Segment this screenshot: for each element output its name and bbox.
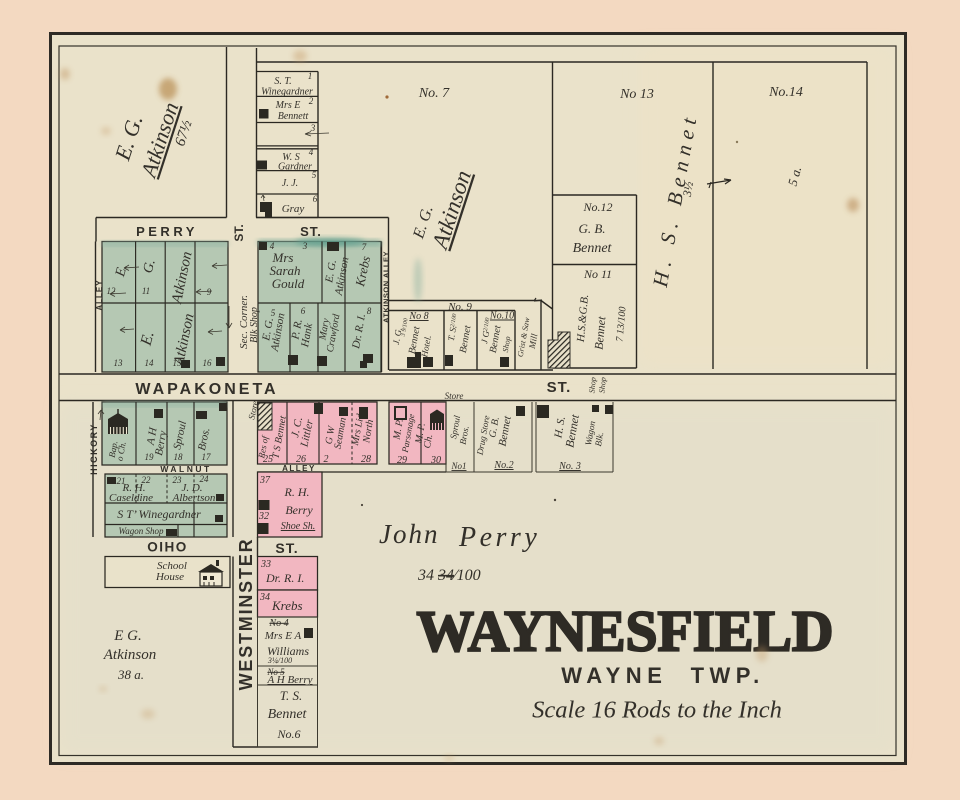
svg-text:WAYNESFIELD: WAYNESFIELD bbox=[417, 599, 834, 664]
svg-text:No.12: No.12 bbox=[582, 200, 612, 214]
svg-text:6: 6 bbox=[301, 306, 306, 316]
svg-text:4: 4 bbox=[270, 241, 275, 251]
svg-text:Bennet: Bennet bbox=[573, 241, 613, 256]
svg-text:Gray: Gray bbox=[282, 203, 305, 215]
svg-text:Caseldine: Caseldine bbox=[109, 492, 153, 504]
svg-text:No.6: No.6 bbox=[276, 727, 300, 741]
svg-text:HICKORY: HICKORY bbox=[89, 423, 99, 475]
svg-text:No 11: No 11 bbox=[583, 267, 612, 281]
svg-text:1: 1 bbox=[308, 71, 313, 81]
svg-text:S. T.: S. T. bbox=[274, 76, 291, 87]
svg-text:Blk Shop: Blk Shop bbox=[249, 307, 260, 343]
svg-text:No1: No1 bbox=[450, 461, 466, 471]
svg-text:Scale 16 Rods to the Inch: Scale 16 Rods to the Inch bbox=[532, 697, 782, 724]
svg-text:11: 11 bbox=[142, 286, 150, 296]
svg-text:5: 5 bbox=[312, 170, 317, 180]
svg-text:Shop: Shop bbox=[587, 377, 597, 394]
svg-text:Bennet: Bennet bbox=[268, 707, 308, 722]
svg-text:J. J.: J. J. bbox=[282, 178, 298, 189]
svg-text:34: 34 bbox=[259, 592, 270, 603]
svg-text:Mrs E: Mrs E bbox=[275, 100, 301, 111]
svg-text:E G.: E G. bbox=[113, 628, 142, 644]
svg-text:16: 16 bbox=[203, 358, 213, 368]
svg-text:T. S.: T. S. bbox=[280, 688, 303, 703]
svg-text:38 a.: 38 a. bbox=[117, 667, 144, 682]
svg-text:Berry: Berry bbox=[285, 503, 313, 517]
svg-text:Store: Store bbox=[445, 391, 464, 401]
svg-text:WALNUT: WALNUT bbox=[160, 464, 211, 474]
svg-text:ST.: ST. bbox=[300, 224, 322, 239]
svg-text:13: 13 bbox=[114, 358, 124, 368]
svg-text:Shoe Sh.: Shoe Sh. bbox=[281, 521, 315, 532]
svg-text:33: 33 bbox=[260, 559, 271, 570]
svg-text:ALLEY: ALLEY bbox=[95, 279, 104, 310]
svg-text:Dr. R. I.: Dr. R. I. bbox=[265, 571, 304, 585]
svg-text:3: 3 bbox=[302, 241, 308, 251]
svg-text:28: 28 bbox=[361, 454, 371, 465]
svg-text:Perry: Perry bbox=[458, 522, 540, 553]
svg-text:6: 6 bbox=[313, 194, 318, 204]
svg-text:S T’ Winegardner: S T’ Winegardner bbox=[117, 507, 201, 521]
svg-text:37: 37 bbox=[259, 475, 271, 486]
svg-text:Bennett: Bennett bbox=[278, 111, 309, 122]
svg-text:25: 25 bbox=[263, 454, 273, 465]
svg-text:ATKINSON ALLEY: ATKINSON ALLEY bbox=[382, 251, 391, 323]
svg-text:3½: 3½ bbox=[680, 180, 697, 198]
svg-text:WAYNE TWP.: WAYNE TWP. bbox=[561, 663, 765, 688]
svg-text:WAPAKONETA: WAPAKONETA bbox=[135, 381, 278, 398]
svg-text:ST.: ST. bbox=[547, 379, 572, 396]
svg-text:34 34⁄100: 34 34⁄100 bbox=[417, 567, 481, 584]
svg-text:No. 3: No. 3 bbox=[558, 461, 581, 472]
svg-text:14: 14 bbox=[145, 358, 155, 368]
svg-text:No.14: No.14 bbox=[768, 85, 803, 100]
svg-text:No.2: No.2 bbox=[493, 460, 513, 471]
svg-text:G. B.: G. B. bbox=[578, 221, 605, 236]
svg-text:Wagon Shop: Wagon Shop bbox=[119, 526, 164, 536]
svg-text:ST.: ST. bbox=[232, 224, 246, 241]
svg-text:R. H.: R. H. bbox=[284, 485, 310, 499]
svg-text:No 13: No 13 bbox=[619, 87, 654, 102]
svg-text:32: 32 bbox=[258, 511, 269, 522]
svg-text:PERRY: PERRY bbox=[136, 224, 198, 239]
svg-text:18: 18 bbox=[174, 452, 184, 462]
svg-text:30: 30 bbox=[430, 455, 441, 466]
svg-text:Gould: Gould bbox=[272, 276, 305, 291]
svg-text:Mrs E A: Mrs E A bbox=[264, 630, 302, 642]
svg-text:17: 17 bbox=[202, 452, 212, 462]
svg-text:OHIO: OHIO bbox=[146, 539, 187, 554]
svg-text:2: 2 bbox=[309, 96, 314, 106]
svg-text:House: House bbox=[155, 571, 184, 583]
svg-text:WESTMINSTER: WESTMINSTER bbox=[236, 538, 256, 691]
svg-text:7: 7 bbox=[362, 242, 367, 252]
svg-text:No.10: No.10 bbox=[489, 311, 514, 322]
svg-text:John: John bbox=[379, 519, 439, 549]
svg-text:A H Berry: A H Berry bbox=[266, 674, 312, 686]
svg-text:No. 7: No. 7 bbox=[418, 86, 450, 101]
svg-text:29: 29 bbox=[397, 455, 407, 466]
svg-text:Gardner: Gardner bbox=[278, 162, 312, 173]
svg-text:9: 9 bbox=[207, 287, 212, 297]
svg-text:Bennet: Bennet bbox=[592, 315, 609, 350]
svg-text:3¼/100: 3¼/100 bbox=[267, 656, 292, 665]
svg-text:Albertson: Albertson bbox=[172, 492, 216, 504]
svg-text:Atkinson: Atkinson bbox=[103, 647, 157, 663]
svg-text:8: 8 bbox=[367, 306, 372, 316]
svg-text:Winegardner: Winegardner bbox=[261, 87, 313, 98]
svg-text:4: 4 bbox=[309, 147, 314, 157]
svg-text:Krebs: Krebs bbox=[271, 598, 303, 613]
svg-text:Shop: Shop bbox=[597, 377, 607, 394]
svg-text:No 4: No 4 bbox=[268, 618, 288, 629]
svg-text:ST.: ST. bbox=[275, 540, 298, 556]
svg-text:2: 2 bbox=[324, 454, 329, 465]
svg-text:No. 9: No. 9 bbox=[447, 301, 472, 313]
svg-text:No 8: No 8 bbox=[408, 311, 428, 322]
svg-text:19: 19 bbox=[145, 452, 155, 462]
